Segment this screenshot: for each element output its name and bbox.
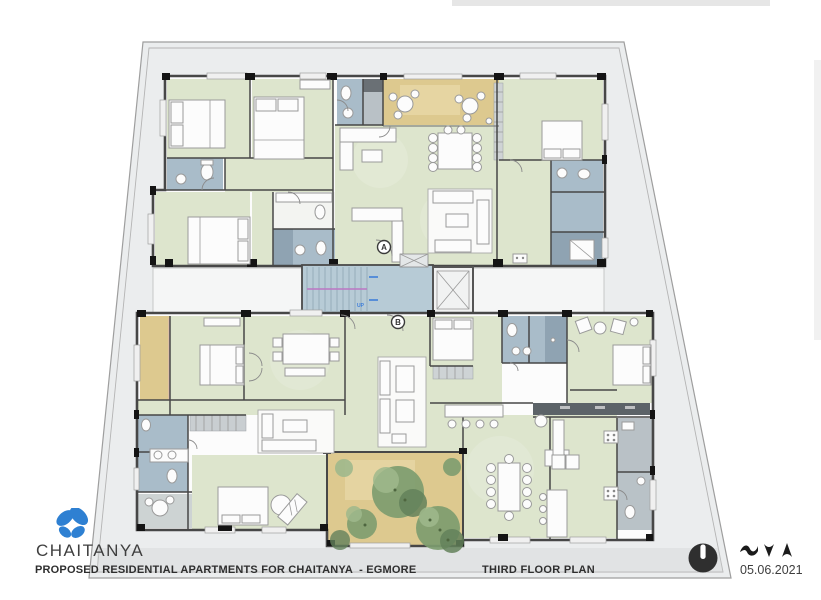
svg-text:A: A (381, 243, 387, 252)
upper-apartment-block (148, 73, 608, 267)
duct (400, 254, 428, 267)
bird-marks-icon (738, 540, 802, 560)
bathroom (551, 190, 603, 232)
project-title: PROPOSED RESIDENTIAL APARTMENTS FOR CHAI… (35, 564, 416, 576)
stair-up-label: UP (357, 303, 365, 309)
brand-name: CHAITANYA (36, 541, 144, 561)
date-label: 05.06.2021 (740, 563, 803, 577)
section-marker-b: B (392, 316, 405, 329)
bed (433, 318, 473, 360)
north-indicator-icon (687, 542, 719, 574)
bed (188, 217, 250, 264)
wardrobe-shaft (494, 83, 503, 160)
section-marker-a: A (378, 241, 391, 254)
closet (276, 193, 332, 202)
terrace-right (473, 268, 604, 315)
wardrobe (300, 80, 330, 89)
svg-text:B: B (395, 318, 401, 327)
lift (433, 267, 473, 313)
terrace-left (153, 268, 303, 313)
wardrobe (190, 415, 246, 431)
wardrobe (433, 366, 473, 379)
scanned-drawing-sheet: { "branding": { "name": "CHAITANYA", "lo… (0, 0, 821, 600)
basin (535, 415, 547, 427)
bed (254, 97, 304, 159)
bed (169, 100, 225, 148)
wardrobe (204, 318, 240, 326)
butterfly-icon (52, 508, 92, 542)
bed (218, 487, 268, 525)
floor-plan-drawing: UP (0, 0, 821, 600)
living-room (378, 357, 426, 447)
bed (542, 121, 582, 160)
dark-ledge (533, 403, 650, 415)
bathroom (617, 472, 653, 530)
living-room (428, 189, 492, 253)
scan-artifact-edge (814, 60, 821, 340)
bed (200, 345, 244, 385)
bed (613, 345, 651, 385)
drawing-title: THIRD FLOOR PLAN (482, 564, 595, 576)
scan-artifact-strip (452, 0, 770, 6)
living-room (258, 410, 334, 453)
bathroom (167, 158, 223, 190)
